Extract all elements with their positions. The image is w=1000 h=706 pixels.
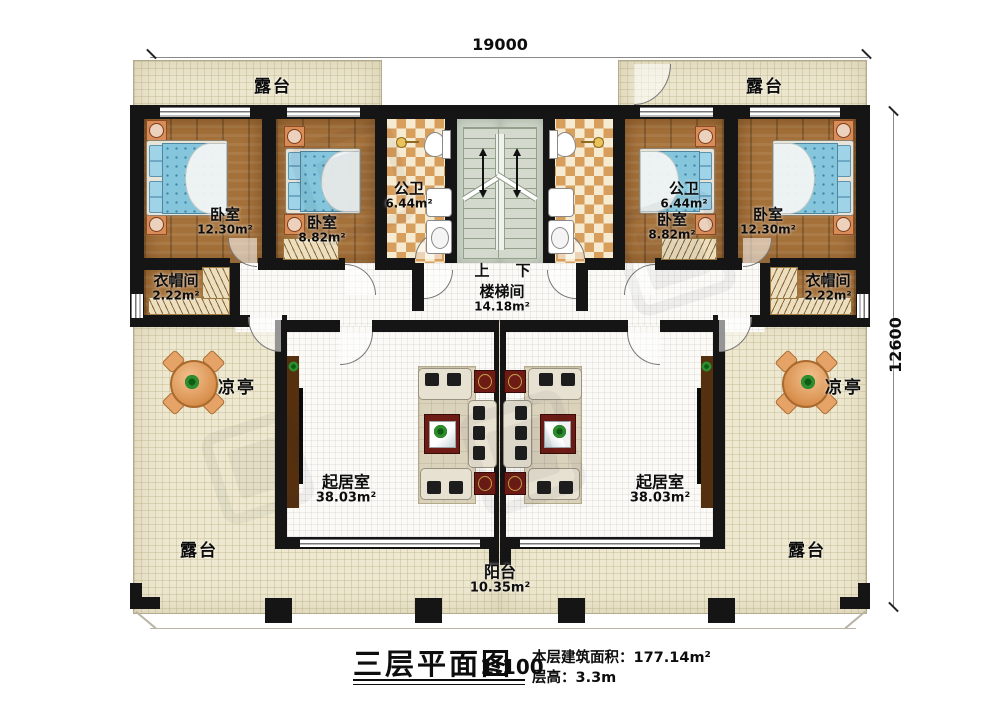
label-cloak-right: 衣帽间 2.22m² bbox=[804, 272, 851, 303]
corner-wall bbox=[130, 597, 160, 609]
bed-double bbox=[772, 140, 854, 216]
column bbox=[415, 598, 442, 623]
wall-cloak-bottom bbox=[130, 315, 240, 327]
plant-icon bbox=[800, 374, 816, 390]
sink-basin-icon bbox=[431, 227, 449, 249]
window bbox=[160, 107, 250, 117]
stair-rail bbox=[498, 134, 505, 250]
stair-arrow-down-icon bbox=[513, 190, 521, 198]
wall-cloak-bottom bbox=[760, 315, 870, 327]
window bbox=[857, 294, 869, 318]
plant-icon bbox=[288, 361, 299, 372]
stair-arrow-up-icon bbox=[513, 148, 521, 156]
wall-vestibule-stub bbox=[576, 263, 588, 311]
stair-direction-line bbox=[517, 154, 519, 192]
dim-line-top bbox=[150, 57, 868, 58]
nightstand bbox=[146, 214, 167, 235]
label-living-left: 起居室 38.03m² bbox=[316, 473, 376, 506]
loveseat bbox=[420, 468, 472, 500]
cushion bbox=[449, 481, 463, 494]
label-bath-right: 公卫 6.44m² bbox=[660, 180, 707, 211]
cushion bbox=[539, 373, 553, 386]
window bbox=[640, 107, 713, 117]
label-pavilion-left: 凉亭 bbox=[218, 379, 256, 399]
label-pavilion-right: 凉亭 bbox=[825, 379, 863, 399]
pillow-icon bbox=[149, 181, 163, 213]
plant-icon bbox=[433, 424, 448, 439]
column bbox=[558, 598, 585, 623]
side-table bbox=[504, 370, 526, 393]
label-terrace-bottom-left: 露台 bbox=[180, 542, 218, 562]
towel-bar bbox=[405, 141, 419, 143]
label-bedroom-right-inner: 卧室 8.82m² bbox=[648, 211, 695, 242]
sink-basin-icon bbox=[551, 227, 569, 249]
column bbox=[265, 598, 292, 623]
towel-bar bbox=[581, 141, 595, 143]
cushion bbox=[427, 481, 441, 494]
label-terrace-top-right: 露台 bbox=[746, 78, 784, 98]
corner-wall bbox=[840, 597, 870, 609]
label-bath-left: 公卫 6.44m² bbox=[385, 180, 432, 211]
label-stair-up: 上 bbox=[474, 262, 489, 279]
pillow-icon bbox=[699, 152, 712, 180]
label-bedroom-left-inner: 卧室 8.82m² bbox=[298, 214, 345, 245]
wall-bedroom-divider bbox=[724, 119, 738, 263]
toilet-tank bbox=[442, 130, 451, 159]
tv-icon bbox=[697, 388, 701, 484]
wall-bedband-c bbox=[375, 258, 415, 270]
plant-icon bbox=[184, 374, 200, 390]
wardrobe bbox=[202, 267, 230, 299]
sink-counter bbox=[548, 220, 574, 254]
washing-machine-icon bbox=[548, 188, 574, 217]
title-underline bbox=[353, 679, 525, 685]
nightstand bbox=[833, 214, 854, 235]
dim-depth-label: 12600 bbox=[887, 317, 905, 373]
stair-arrow-down-icon bbox=[479, 190, 487, 198]
floor-plan-canvas: 19000 12600 露台 露台 卧室 12.30m² 卧室 8.82m² 卧… bbox=[0, 0, 1000, 706]
column bbox=[708, 598, 735, 623]
pillow-icon bbox=[149, 145, 163, 177]
plant-icon bbox=[701, 361, 712, 372]
floor-area-note: 本层建筑面积：177.14m² bbox=[532, 646, 711, 667]
window bbox=[131, 294, 143, 318]
label-terrace-bottom-right: 露台 bbox=[788, 542, 826, 562]
tv-cabinet bbox=[701, 356, 713, 508]
label-stair-down: 下 bbox=[515, 262, 530, 279]
label-bedroom-right-outer: 卧室 12.30m² bbox=[740, 206, 796, 237]
cushion bbox=[561, 373, 575, 386]
window-sliding bbox=[300, 539, 480, 547]
wall-living-top-b bbox=[500, 320, 628, 332]
floor-height-note: 层高：3.3m bbox=[532, 666, 616, 687]
wall-living-west bbox=[713, 320, 725, 549]
label-stairwell: 楼梯间 14.18m² bbox=[474, 283, 530, 314]
wall-vestibule-stub bbox=[412, 263, 424, 311]
sink-counter bbox=[426, 220, 452, 254]
label-cloak-left: 衣帽间 2.22m² bbox=[152, 272, 199, 303]
nightstand bbox=[695, 126, 716, 147]
loveseat bbox=[418, 368, 472, 400]
label-balcony: 阳台 10.35m² bbox=[470, 563, 530, 596]
label-living-right: 起居室 38.03m² bbox=[630, 473, 690, 506]
dim-width-label: 19000 bbox=[472, 36, 528, 54]
pillow-icon bbox=[837, 145, 851, 177]
nightstand bbox=[146, 120, 167, 141]
slab-edge-line bbox=[150, 628, 856, 629]
side-table bbox=[474, 370, 496, 393]
cushion bbox=[447, 373, 461, 386]
pillow-icon bbox=[837, 181, 851, 213]
wall-living-top-b bbox=[372, 320, 500, 332]
window-sliding bbox=[520, 539, 700, 547]
wall-living-top-a bbox=[660, 320, 713, 332]
window bbox=[750, 107, 840, 117]
label-terrace-top-left: 露台 bbox=[254, 78, 292, 98]
toilet-tank bbox=[549, 130, 558, 159]
window bbox=[287, 107, 360, 117]
nightstand bbox=[833, 120, 854, 141]
wall-living-top-a bbox=[287, 320, 340, 332]
stair-arrow-up-icon bbox=[479, 148, 487, 156]
stair-direction-line bbox=[482, 154, 484, 192]
cushion bbox=[425, 373, 439, 386]
quilt bbox=[185, 143, 227, 214]
wall-bedroom-divider bbox=[262, 119, 276, 263]
wardrobe bbox=[770, 267, 798, 299]
label-bedroom-left-outer: 卧室 12.30m² bbox=[197, 206, 253, 237]
